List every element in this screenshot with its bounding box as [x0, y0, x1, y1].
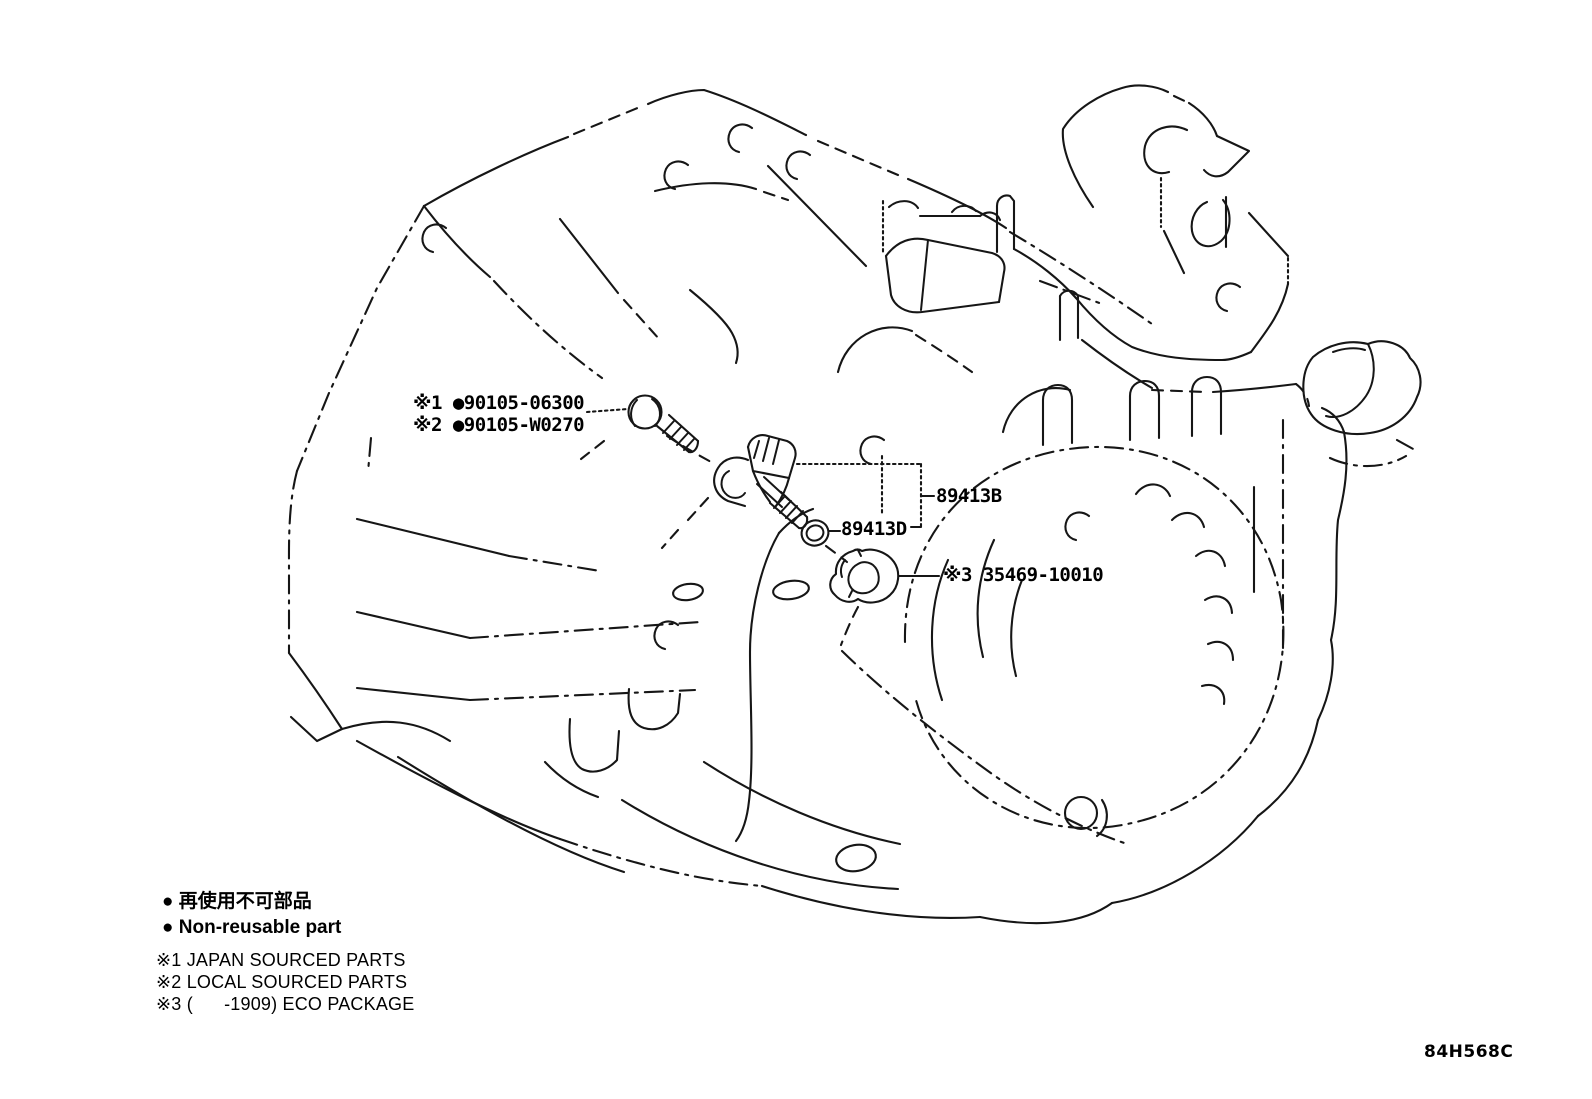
legend-non-reusable-jp: ● 再使用不可部品 [162, 892, 312, 911]
bell-housing [905, 377, 1283, 836]
callout-o-ring[interactable]: 89413D [841, 520, 907, 539]
callout-speed-sensor[interactable]: 89413B [936, 487, 1002, 506]
speed-sensor-89413B[interactable] [714, 435, 807, 528]
legend-note-2: ※2 LOCAL SOURCED PARTS [156, 973, 407, 991]
figure-code: 84H568C [1424, 1044, 1513, 1061]
callout-plug[interactable]: ※3 35469-10010 [943, 566, 1103, 585]
bolt-90105[interactable] [629, 396, 699, 453]
parts-diagram-page: ※1 ●90105-06300 ※2 ●90105-W0270 89413B 8… [0, 0, 1592, 1099]
bolt-boss-arcs [422, 125, 1240, 649]
callout-bolt-part-1[interactable]: ※1 ●90105-06300 [413, 394, 584, 413]
harness-tube [1014, 249, 1309, 406]
callout-bolt-part-2[interactable]: ※2 ●90105-W0270 [413, 416, 584, 435]
mount-bracket [883, 195, 1102, 340]
mid-case-details [545, 456, 1130, 889]
legend-note-3: ※3 ( -1909) ECO PACKAGE [156, 995, 414, 1013]
o-ring-89413D[interactable] [798, 517, 831, 549]
top-right-housing [1063, 85, 1288, 360]
legend-note-1: ※1 JAPAN SOURCED PARTS [156, 951, 406, 969]
harness-connector [1303, 341, 1420, 466]
case-ribs [357, 519, 700, 700]
legend-non-reusable-en: ● Non-reusable part [162, 918, 341, 937]
case-outline [289, 206, 1347, 923]
